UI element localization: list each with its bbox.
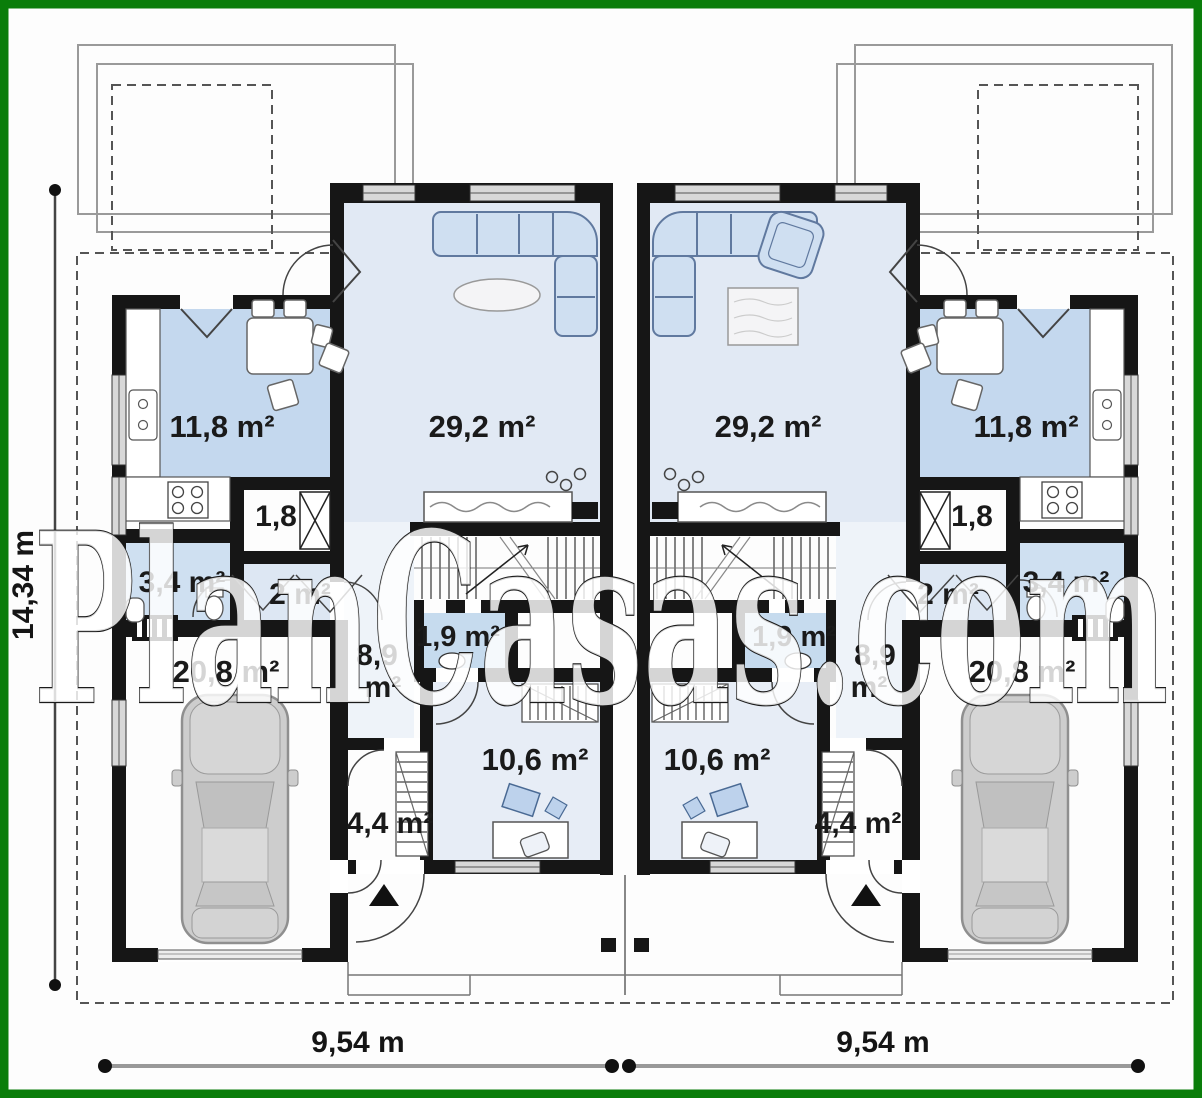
roof-dashed-outline xyxy=(112,85,272,250)
porch-column xyxy=(601,938,616,952)
floor-plan-svg: 14,34 m 9,54 m 9,54 m 11,8 m² 29,2 m² 1,… xyxy=(0,0,1202,1098)
wardrobe-icon xyxy=(396,752,428,856)
label-right-vestibule: 4,4 m² xyxy=(815,807,902,840)
width-dimension-label-right: 9,54 m xyxy=(836,1026,929,1059)
square-rug-icon xyxy=(728,288,798,345)
watermark-text: PlanCasas.com xyxy=(34,482,1169,758)
label-right-kitchen: 11,8 m² xyxy=(973,409,1078,444)
floor-plan-page: 14,34 m 9,54 m 9,54 m 11,8 m² 29,2 m² 1,… xyxy=(0,0,1202,1098)
label-right-living: 29,2 m² xyxy=(715,409,822,444)
width-dimension-label-left: 9,54 m xyxy=(311,1026,404,1059)
oval-rug-icon xyxy=(454,279,540,311)
garage-door-icon xyxy=(158,950,302,959)
label-left-kitchen: 11,8 m² xyxy=(169,409,274,444)
label-left-vestibule: 4,4 m² xyxy=(347,807,434,840)
entrance-arrow-icon xyxy=(369,884,399,906)
label-left-living: 29,2 m² xyxy=(429,409,536,444)
dimension-horizontal: 9,54 m 9,54 m xyxy=(98,1026,1145,1073)
